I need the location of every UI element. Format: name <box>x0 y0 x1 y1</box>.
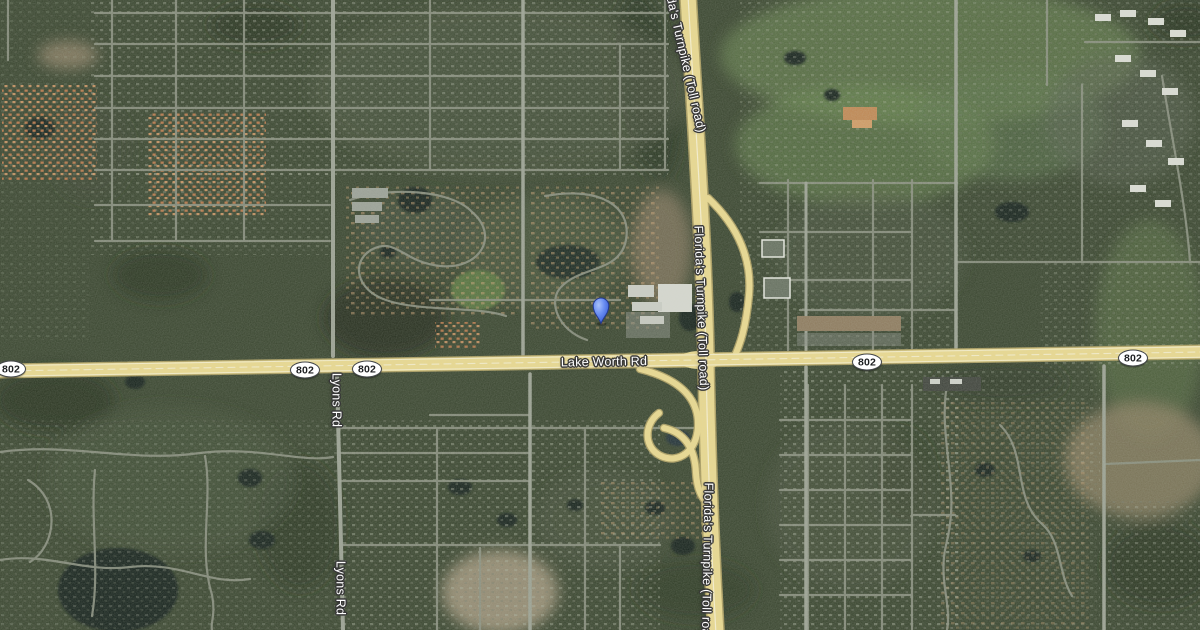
road-label-lyons-rd-south: Lyons Rd <box>334 561 347 615</box>
road-label-turnpike-south: Florida's Turnpike (Toll road) <box>699 482 714 630</box>
location-pin-icon[interactable] <box>592 296 610 326</box>
route-802-shield: 802 <box>1118 350 1148 367</box>
road-label-lyons-rd-north: Lyons Rd <box>330 373 343 427</box>
satellite-map[interactable]: 802 802 802 802 802 Lake Worth Rd Florid… <box>0 0 1200 630</box>
route-802-shield: 802 <box>352 361 382 378</box>
road-label-lake-worth-rd: Lake Worth Rd <box>561 355 648 369</box>
route-802-shield: 802 <box>852 354 882 371</box>
route-802-shield: 802 <box>290 362 320 379</box>
